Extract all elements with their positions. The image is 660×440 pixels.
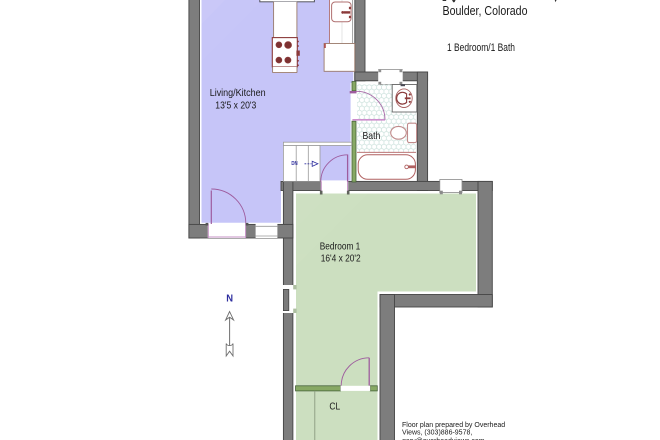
svg-text:DN: DN xyxy=(291,161,298,167)
svg-text:Floor plan prepared by Overhea: Floor plan prepared by Overhead xyxy=(402,422,505,429)
svg-text:Boulder, Colorado: Boulder, Colorado xyxy=(443,3,528,18)
svg-text:13'5 x 20'3: 13'5 x 20'3 xyxy=(215,100,256,111)
svg-text:Bath: Bath xyxy=(363,131,381,142)
svg-text:N: N xyxy=(226,292,233,304)
svg-text:Living/Kitchen: Living/Kitchen xyxy=(210,88,266,99)
svg-text:1 Bedroom/1 Bath: 1 Bedroom/1 Bath xyxy=(447,42,515,54)
svg-text:Views, (303)886-9578,: Views, (303)886-9578, xyxy=(402,430,472,437)
svg-text:16'4 x 20'2: 16'4 x 20'2 xyxy=(321,253,361,264)
svg-text:Bedroom 1: Bedroom 1 xyxy=(320,242,361,253)
svg-text:CL: CL xyxy=(329,402,340,413)
